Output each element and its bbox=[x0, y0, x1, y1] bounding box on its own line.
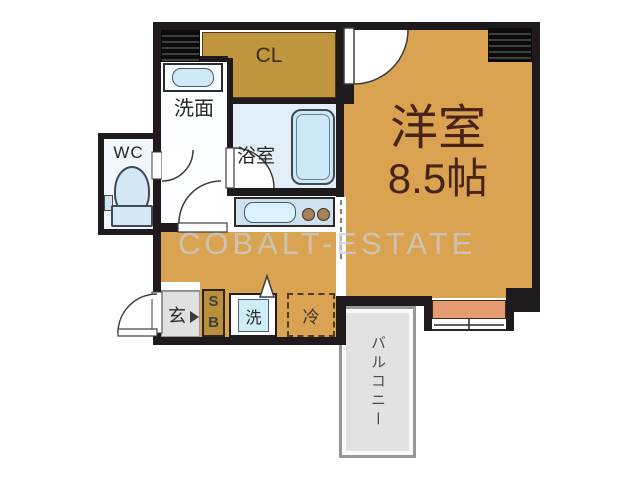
wall-living-bottom bbox=[336, 296, 432, 306]
wall-top bbox=[153, 22, 540, 30]
watermark-text: COBALT-ESTATE bbox=[178, 226, 476, 262]
washbasin-bowl-icon bbox=[172, 68, 214, 87]
living-room-label-block: 洋室 8.5帖 bbox=[344, 103, 532, 203]
wall-bathroom-bottom bbox=[227, 188, 336, 196]
shoebox-label-b: B bbox=[208, 312, 219, 333]
wc-label: WC bbox=[104, 143, 153, 163]
bathroom-label: 浴室 bbox=[237, 141, 275, 168]
wall-closet-bottom bbox=[227, 98, 336, 104]
window-sill bbox=[432, 300, 506, 319]
fridge-kanji: 冷 bbox=[303, 303, 320, 328]
pillar-hatch-top-right bbox=[488, 28, 532, 62]
wall-bottom-left bbox=[153, 337, 346, 345]
wall-washroom-bottom bbox=[161, 223, 178, 232]
stove-burner-icon bbox=[317, 208, 330, 221]
wall-washroom-bathroom bbox=[227, 58, 233, 148]
living-room-name: 洋室 bbox=[344, 103, 532, 155]
closet-label: CL bbox=[202, 44, 336, 68]
entrance-door-arc-icon bbox=[118, 294, 157, 333]
shoebox-label-s: S bbox=[208, 291, 218, 312]
balcony-label: バルコニー bbox=[367, 335, 388, 430]
fridge-label: 冷 bbox=[287, 293, 335, 337]
stove-burner-icon bbox=[302, 208, 315, 221]
shoebox-label-block: S B bbox=[202, 291, 225, 333]
bathtub-inner-line bbox=[296, 114, 330, 180]
living-room-size: 8.5帖 bbox=[344, 155, 532, 203]
entrance-door-leaf-icon bbox=[118, 329, 157, 336]
window-band bbox=[432, 319, 506, 331]
wall-kitchen-living bbox=[336, 104, 344, 197]
wall-right bbox=[532, 30, 540, 300]
toilet-tank-icon bbox=[111, 205, 153, 227]
kitchen-sink-icon bbox=[244, 202, 296, 223]
washroom-label: 洗面 bbox=[161, 92, 227, 121]
wall-left-upper bbox=[153, 30, 161, 153]
wall-under-living-door bbox=[336, 83, 354, 104]
pillar-hatch-top-left bbox=[161, 30, 200, 62]
wall-window-stub-right bbox=[506, 296, 514, 331]
washer-kanji: 洗 bbox=[245, 304, 261, 328]
balcony-label-block: バルコニー bbox=[339, 306, 416, 458]
washer-label: 洗 bbox=[238, 299, 269, 332]
entrance-step bbox=[161, 282, 200, 291]
bathtub-icon bbox=[291, 109, 335, 185]
entrance-label: 玄 bbox=[168, 302, 186, 328]
floor-plan: 洋室 8.5帖 CL 洗面 WC 浴室 玄 S B 洗 冷 バルコニー COBA… bbox=[0, 0, 640, 480]
wall-window-stub-left bbox=[424, 296, 432, 331]
wall-left-mid bbox=[153, 178, 161, 292]
